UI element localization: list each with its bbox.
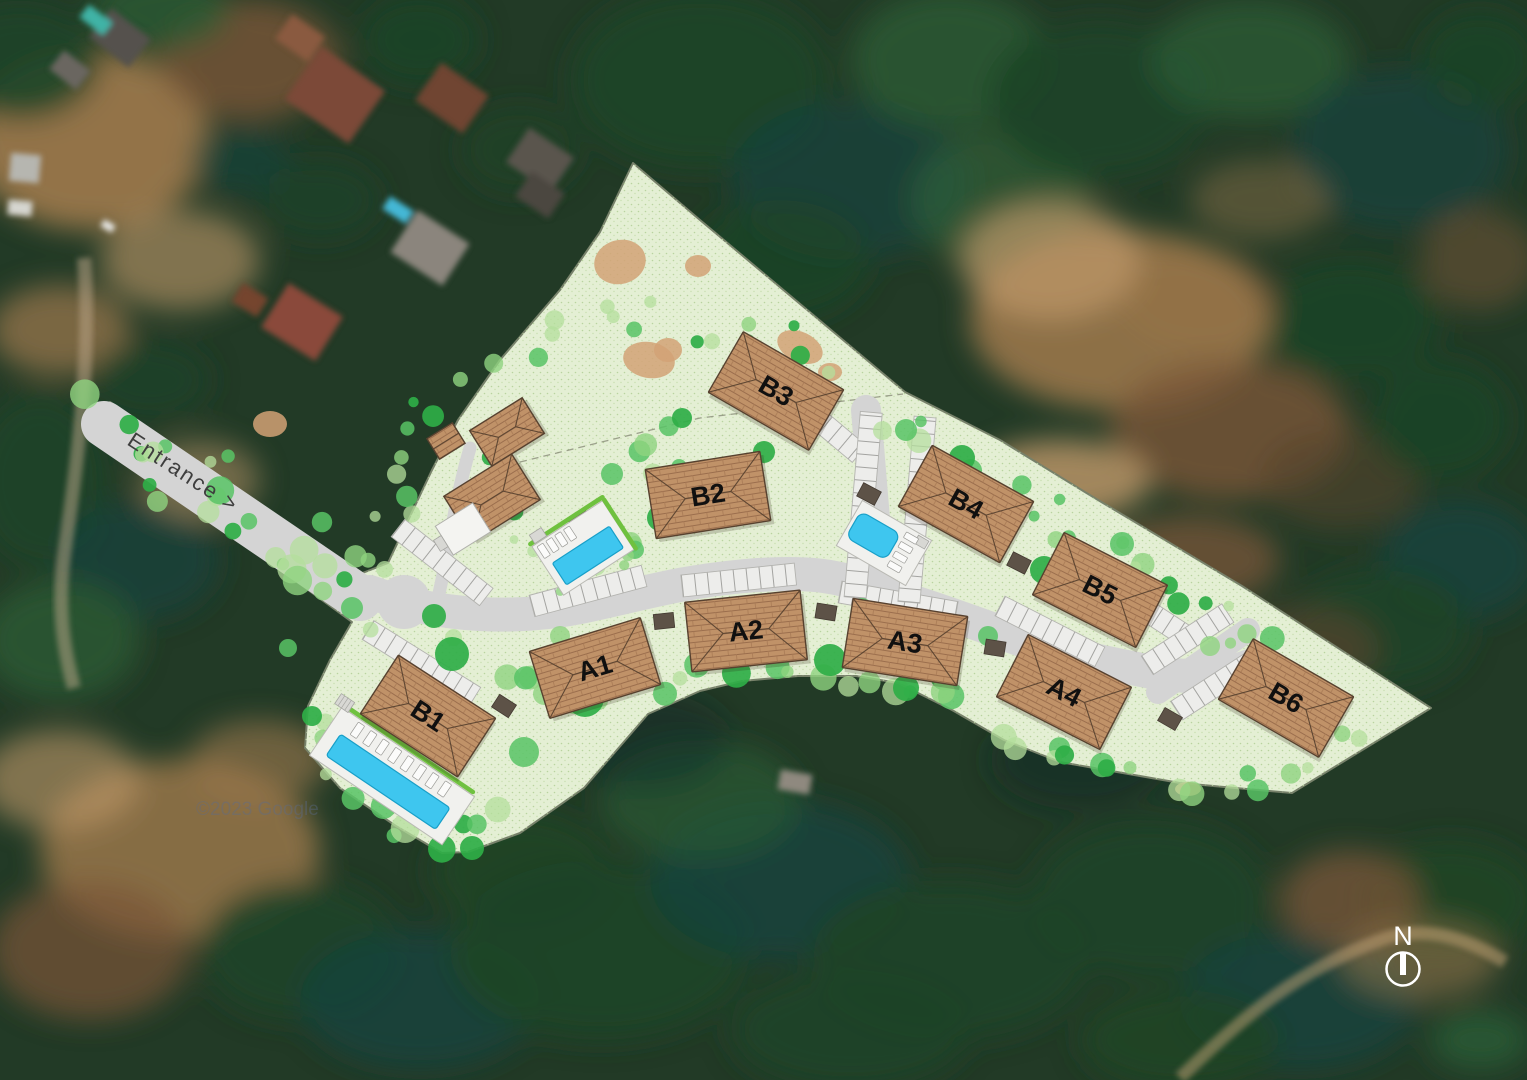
tree bbox=[1224, 784, 1239, 799]
tree bbox=[514, 666, 537, 689]
utility-pad bbox=[653, 612, 674, 629]
tree bbox=[510, 535, 519, 544]
tree bbox=[370, 511, 381, 522]
tree bbox=[403, 505, 420, 522]
tree bbox=[205, 456, 217, 468]
tree bbox=[644, 296, 656, 308]
tree bbox=[320, 768, 332, 780]
tree bbox=[814, 644, 846, 676]
tree bbox=[1225, 638, 1236, 649]
satellite-foliage-blob bbox=[190, 125, 290, 195]
tree bbox=[336, 571, 352, 587]
utility-pad bbox=[984, 639, 1006, 657]
site-plan-image: ©2023 Google bbox=[0, 0, 1527, 1080]
tree bbox=[781, 666, 793, 678]
tree bbox=[314, 582, 333, 601]
building-label: A2 bbox=[727, 614, 764, 647]
tree bbox=[460, 836, 484, 860]
tree bbox=[376, 561, 393, 578]
tree bbox=[396, 486, 417, 507]
tree bbox=[1055, 745, 1074, 764]
dirt-patch bbox=[654, 338, 682, 362]
tree bbox=[484, 354, 503, 373]
tree bbox=[822, 366, 835, 379]
tree bbox=[873, 421, 892, 440]
tree bbox=[394, 450, 409, 465]
tree bbox=[915, 416, 927, 428]
tree bbox=[789, 320, 800, 331]
satellite-foliage-blob bbox=[1370, 360, 1510, 480]
satellite-house-roof bbox=[7, 199, 32, 216]
tree bbox=[601, 463, 623, 485]
tree bbox=[704, 333, 720, 349]
tree bbox=[619, 560, 629, 570]
tree bbox=[1281, 763, 1301, 783]
tree bbox=[221, 449, 234, 462]
tree bbox=[279, 639, 297, 657]
tree bbox=[895, 419, 917, 441]
tree bbox=[1098, 759, 1116, 777]
tree bbox=[509, 737, 539, 767]
dirt-patch bbox=[685, 255, 711, 277]
north-label: N bbox=[1393, 921, 1413, 951]
tree bbox=[1124, 761, 1137, 774]
tree bbox=[1240, 765, 1256, 781]
tree bbox=[408, 397, 418, 407]
tree bbox=[363, 622, 379, 638]
tree bbox=[545, 310, 565, 330]
satellite-foliage-blob bbox=[960, 200, 1140, 320]
tree bbox=[1351, 730, 1368, 747]
tree bbox=[741, 317, 756, 332]
tree bbox=[1247, 779, 1269, 801]
tree bbox=[838, 676, 859, 697]
satellite-foliage-blob bbox=[1190, 160, 1330, 240]
tree bbox=[467, 815, 487, 835]
site-plan-canvas: ©2023 Google bbox=[0, 0, 1527, 1080]
tree bbox=[1180, 781, 1205, 806]
tree bbox=[361, 553, 376, 568]
tree bbox=[485, 797, 511, 823]
tree bbox=[626, 322, 642, 338]
tree bbox=[143, 478, 157, 492]
tree bbox=[1167, 592, 1189, 614]
dirt-patch bbox=[253, 411, 287, 437]
satellite-foliage-blob bbox=[1260, 260, 1440, 380]
tree bbox=[634, 433, 657, 456]
map-watermark: ©2023 Google bbox=[196, 799, 319, 820]
satellite-house-roof bbox=[9, 153, 41, 184]
north-needle bbox=[1400, 953, 1406, 975]
building-a2: A2 bbox=[685, 590, 811, 676]
tree bbox=[290, 536, 319, 565]
tree bbox=[691, 335, 704, 348]
tree bbox=[1302, 762, 1313, 773]
tree bbox=[283, 566, 312, 595]
tree bbox=[1004, 737, 1027, 760]
tree bbox=[400, 421, 414, 435]
tree bbox=[225, 523, 242, 540]
satellite-house bbox=[7, 199, 32, 216]
tree bbox=[387, 465, 406, 484]
tree bbox=[529, 348, 548, 367]
tree bbox=[673, 671, 688, 686]
tree bbox=[1223, 601, 1234, 612]
tree bbox=[435, 637, 469, 671]
tree bbox=[1200, 636, 1220, 656]
tree bbox=[1054, 494, 1065, 505]
tree bbox=[147, 491, 168, 512]
tree bbox=[70, 379, 100, 409]
satellite-foliage-blob bbox=[1430, 1010, 1527, 1070]
utility-pad bbox=[815, 603, 837, 621]
tree bbox=[422, 604, 446, 628]
tree bbox=[1199, 596, 1213, 610]
tree bbox=[341, 597, 363, 619]
tree bbox=[453, 372, 468, 387]
tree bbox=[672, 408, 692, 428]
building-label: B2 bbox=[689, 477, 728, 512]
tree bbox=[600, 299, 615, 314]
tree bbox=[1110, 532, 1134, 556]
building-label: A3 bbox=[886, 624, 925, 659]
tree bbox=[241, 513, 258, 530]
tree bbox=[312, 512, 332, 532]
satellite-house bbox=[9, 153, 41, 184]
tree bbox=[302, 706, 322, 726]
tree bbox=[422, 405, 444, 427]
